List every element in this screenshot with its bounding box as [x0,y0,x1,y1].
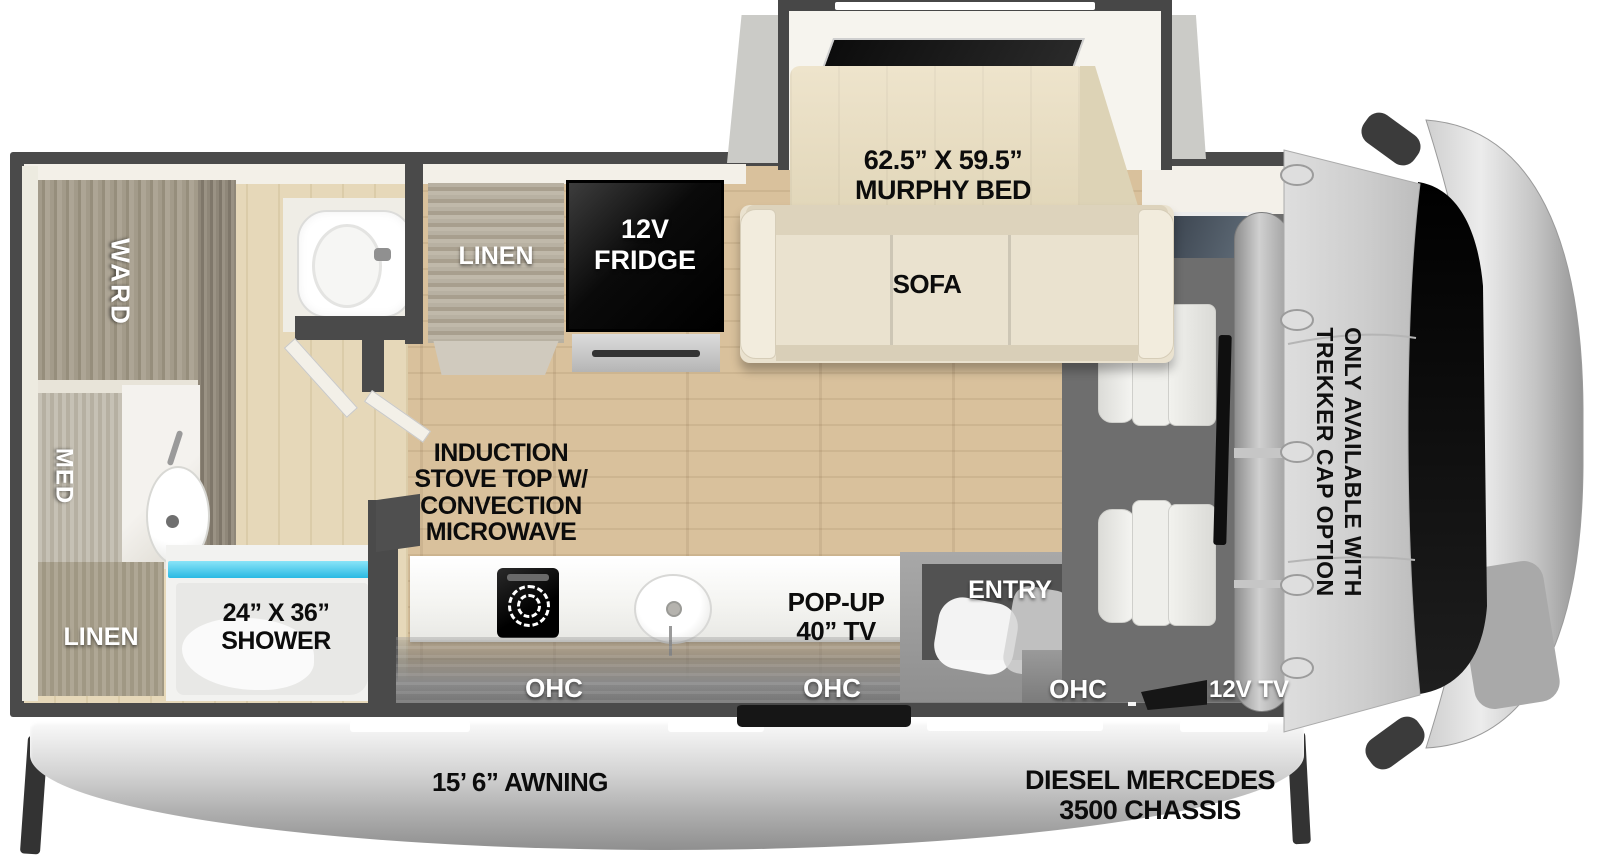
chassis-label: DIESEL MERCEDES 3500 CHASSIS [1000,766,1300,825]
sofa-arm-right [1138,209,1174,359]
side-mirror-bottom [1360,711,1430,775]
cap-latch [1281,658,1313,678]
cap-latch [1281,442,1313,462]
kitchen-faucet [666,601,682,617]
chassis-line2: 3500 CHASSIS [1000,796,1300,826]
entry-label: ENTRY [952,577,1068,603]
shower-label: 24” X 36” SHOWER [184,600,368,655]
trekker-note-line1: ONLY AVAILABLE WITH [1340,327,1366,597]
shower-glass [168,561,372,578]
slideout-top-highlight [835,2,1095,10]
sofa-label: SOFA [872,270,982,299]
body-bottom-highlight [927,719,1103,731]
sofa-backrest [746,205,1168,235]
murphy-bed-label: 62.5” X 59.5” MURPHY BED [828,146,1058,205]
rv-floorplan-diagram: ONLY AVAILABLE WITH TREKKER CAP OPTION 6… [0,0,1600,868]
sofa-arm-left [740,209,776,359]
cap-latch [1281,165,1313,185]
ohc-label-left: OHC [518,675,590,702]
murphy-bed-name: MURPHY BED [828,176,1058,206]
body-bottom-highlight [1180,721,1268,732]
toilet-flush-button [374,248,391,261]
ohc-label-mid: OHC [796,675,868,702]
stove-label-line3: CONVECTION [395,493,607,519]
vanity-faucet [166,515,179,528]
stove-label-line4: MICROWAVE [395,519,607,545]
kitchen-linen-base [428,341,564,375]
slideout-wing-left [727,15,779,163]
ward-label: WARD [106,238,133,325]
seat-headrest [1168,504,1216,626]
bath-linen-label: LINEN [40,624,162,650]
seat-headrest [1168,304,1216,426]
med-label: MED [51,448,76,504]
stove-label-line1: INDUCTION [395,440,607,466]
seat-cushion [1098,509,1136,623]
fridge-drawer-slot [592,350,700,357]
shower-size: 24” X 36” [184,600,368,628]
sofa-front-edge [776,345,1138,361]
awning-label: 15’ 6” AWNING [420,768,620,797]
stove-label-line2: STOVE TOP W/ [395,466,607,492]
cooktop-vent-slot [507,574,549,581]
chassis-line1: DIESEL MERCEDES [1000,766,1300,796]
ohc-label-right: OHC [1042,676,1114,703]
popup-tv-label: POP-UP 40” TV [770,588,902,645]
cap-latch [1281,310,1313,330]
passenger-seat [1098,500,1216,630]
cooktop-ring-inner [517,594,541,618]
body-bottom-highlight [350,721,470,732]
slideout-window [822,38,1085,69]
stove-label: INDUCTION STOVE TOP W/ CONVECTION MICROW… [395,440,607,545]
trekker-note-line2: TREKKER CAP OPTION [1312,327,1338,596]
shower-name: SHOWER [184,628,368,656]
left-wall-face [22,166,38,701]
popup-tv-housing [737,703,911,727]
fridge-label-line2: FRIDGE [566,245,724,276]
bathroom-wall-t [295,316,423,340]
toilet-bowl [312,224,382,308]
cab-front: ONLY AVAILABLE WITH TREKKER CAP OPTION [1280,70,1600,800]
fridge-label: 12V FRIDGE [566,214,724,276]
windshield [1408,182,1487,694]
cap-latch [1281,575,1313,595]
popup-tv-line1: POP-UP [770,588,902,617]
kitchen-linen-label: LINEN [428,243,564,269]
tv-12v-label: 12V TV [1196,677,1302,702]
sofa-cushion-seam [1008,235,1011,353]
murphy-bed-size: 62.5” X 59.5” [828,146,1058,176]
side-mirror-top [1356,107,1426,171]
popup-tv-line2: 40” TV [770,617,902,646]
bathroom-wall-post [362,340,384,392]
seat-back [1132,500,1172,626]
fridge-label-line1: 12V [566,214,724,245]
slideout-wing-right [1170,15,1206,159]
